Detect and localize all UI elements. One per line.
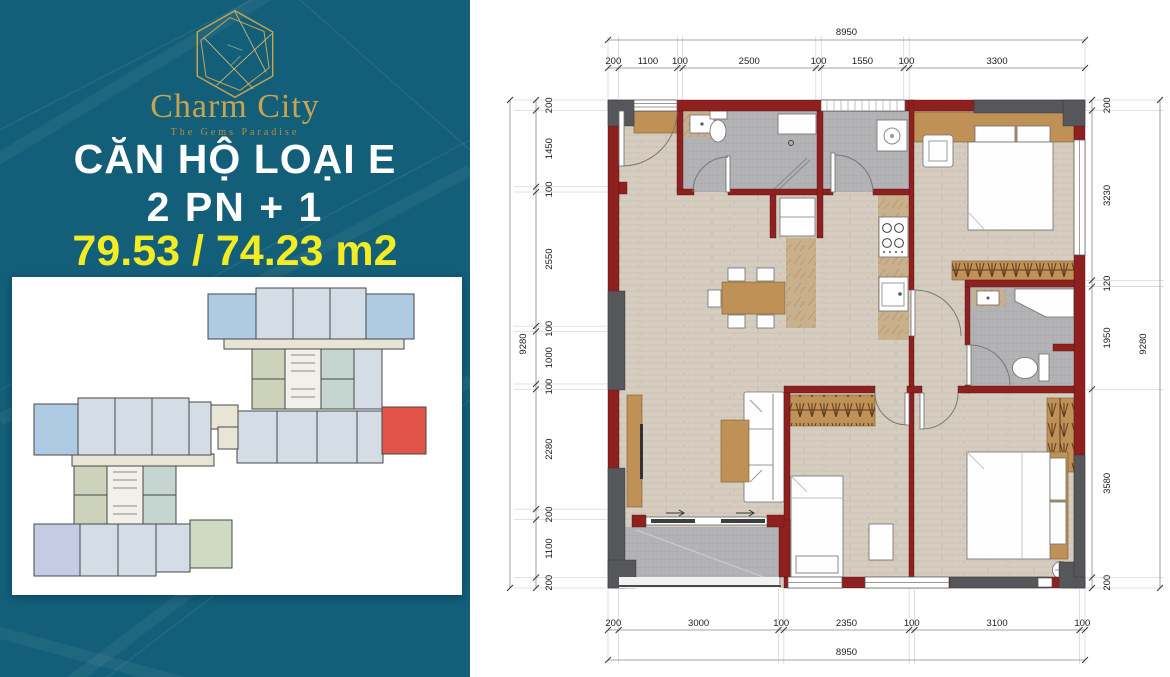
entry-window (634, 100, 677, 111)
kitchen-counter-2 (786, 238, 816, 328)
stove (879, 217, 908, 257)
dim-left-9: 1100 (544, 538, 555, 558)
dim-right-0: 200 (1102, 97, 1113, 113)
dim-left-1: 1450 (544, 138, 555, 159)
floor-plan-panel: 2001100100250010015501003300895020030001… (470, 0, 1170, 677)
unit-subtitle: 2 PN + 1 (0, 184, 470, 231)
dim-left-10: 200 (544, 575, 555, 591)
dim-left-7: 2280 (544, 439, 555, 460)
key-plan-highlight-unit (382, 407, 426, 454)
pillow (975, 126, 1015, 142)
dim-left-4: 100 (544, 321, 555, 337)
dim-left-5: 1000 (544, 347, 555, 368)
dining-chair (728, 268, 745, 281)
dim-left-0: 200 (544, 97, 555, 113)
dim-top-total: 8950 (836, 27, 857, 38)
balcony-floor (619, 527, 781, 584)
floor-plan-svg: 2001100100250010015501003300895020030001… (470, 0, 1170, 677)
toilet-1-tank (710, 111, 727, 119)
key-plan-box (12, 277, 462, 595)
dim-top-0: 200 (605, 56, 621, 67)
dim-right-1: 3230 (1102, 185, 1113, 206)
desk (869, 524, 893, 560)
bedroom-2-window (1038, 578, 1052, 587)
dim-right-4: 3580 (1102, 473, 1113, 494)
dim-top-1: 1100 (638, 56, 658, 67)
tv (640, 424, 643, 479)
dim-left-8: 200 (544, 506, 555, 522)
pillow (1050, 458, 1066, 500)
dim-bottom-1: 3000 (688, 618, 709, 629)
unit-area: 79.53 / 74.23 m2 (0, 227, 470, 276)
dining-chair (757, 268, 774, 281)
unit-title: CĂN HỘ LOẠI E (0, 136, 470, 183)
dim-bottom-3: 2350 (836, 618, 857, 629)
dim-right-3: 1950 (1102, 327, 1113, 348)
dim-right-total: 9280 (1138, 333, 1149, 354)
info-panel: Charm City The Gems Paradise CĂN HỘ LOẠI… (0, 0, 470, 677)
dim-bottom-2: 100 (773, 618, 789, 629)
toilet-2-tank (1039, 354, 1049, 381)
brand-name: Charm City (0, 88, 470, 126)
toilet-2 (1013, 358, 1038, 379)
pillow (1017, 126, 1050, 142)
dining-chair (728, 315, 745, 328)
dim-top-6: 100 (899, 56, 915, 67)
dim-top-2: 100 (672, 56, 688, 67)
dim-left-3: 2550 (544, 249, 555, 270)
dim-bottom-5: 3100 (986, 618, 1007, 629)
poster: Charm City The Gems Paradise CĂN HỘ LOẠI… (0, 0, 1170, 677)
tv-cabinet (627, 395, 642, 507)
dim-left-total: 9280 (518, 333, 529, 354)
dining-chair (708, 290, 721, 307)
dining-table (722, 282, 785, 314)
sofa (744, 392, 784, 502)
charm-city-logo-icon (187, 8, 283, 100)
dim-top-3: 2500 (739, 56, 760, 67)
dim-left-6: 100 (544, 379, 555, 395)
dim-bottom-total: 8950 (836, 647, 857, 658)
dim-top-7: 3300 (986, 56, 1007, 67)
dim-right-5: 200 (1102, 575, 1113, 591)
armchair (923, 135, 953, 167)
double-bed-master (968, 142, 1053, 230)
toilet-1 (710, 120, 726, 142)
double-bed-2 (967, 452, 1050, 559)
shower-bench (778, 114, 816, 134)
pillow (1050, 502, 1066, 544)
dim-bottom-4: 100 (904, 618, 920, 629)
pillow (796, 556, 838, 573)
dim-bottom-6: 100 (1074, 618, 1090, 629)
dim-top-4: 100 (811, 56, 827, 67)
laundry-louver (821, 100, 905, 111)
dim-bottom-0: 200 (605, 618, 621, 629)
entry-cabinet (634, 111, 677, 133)
dining-chair (757, 315, 774, 328)
dim-left-2: 100 (544, 181, 555, 197)
coffee-table (721, 420, 749, 482)
dim-right-2: 120 (1102, 276, 1113, 292)
dim-top-5: 1550 (852, 56, 873, 67)
key-plan (12, 277, 462, 595)
